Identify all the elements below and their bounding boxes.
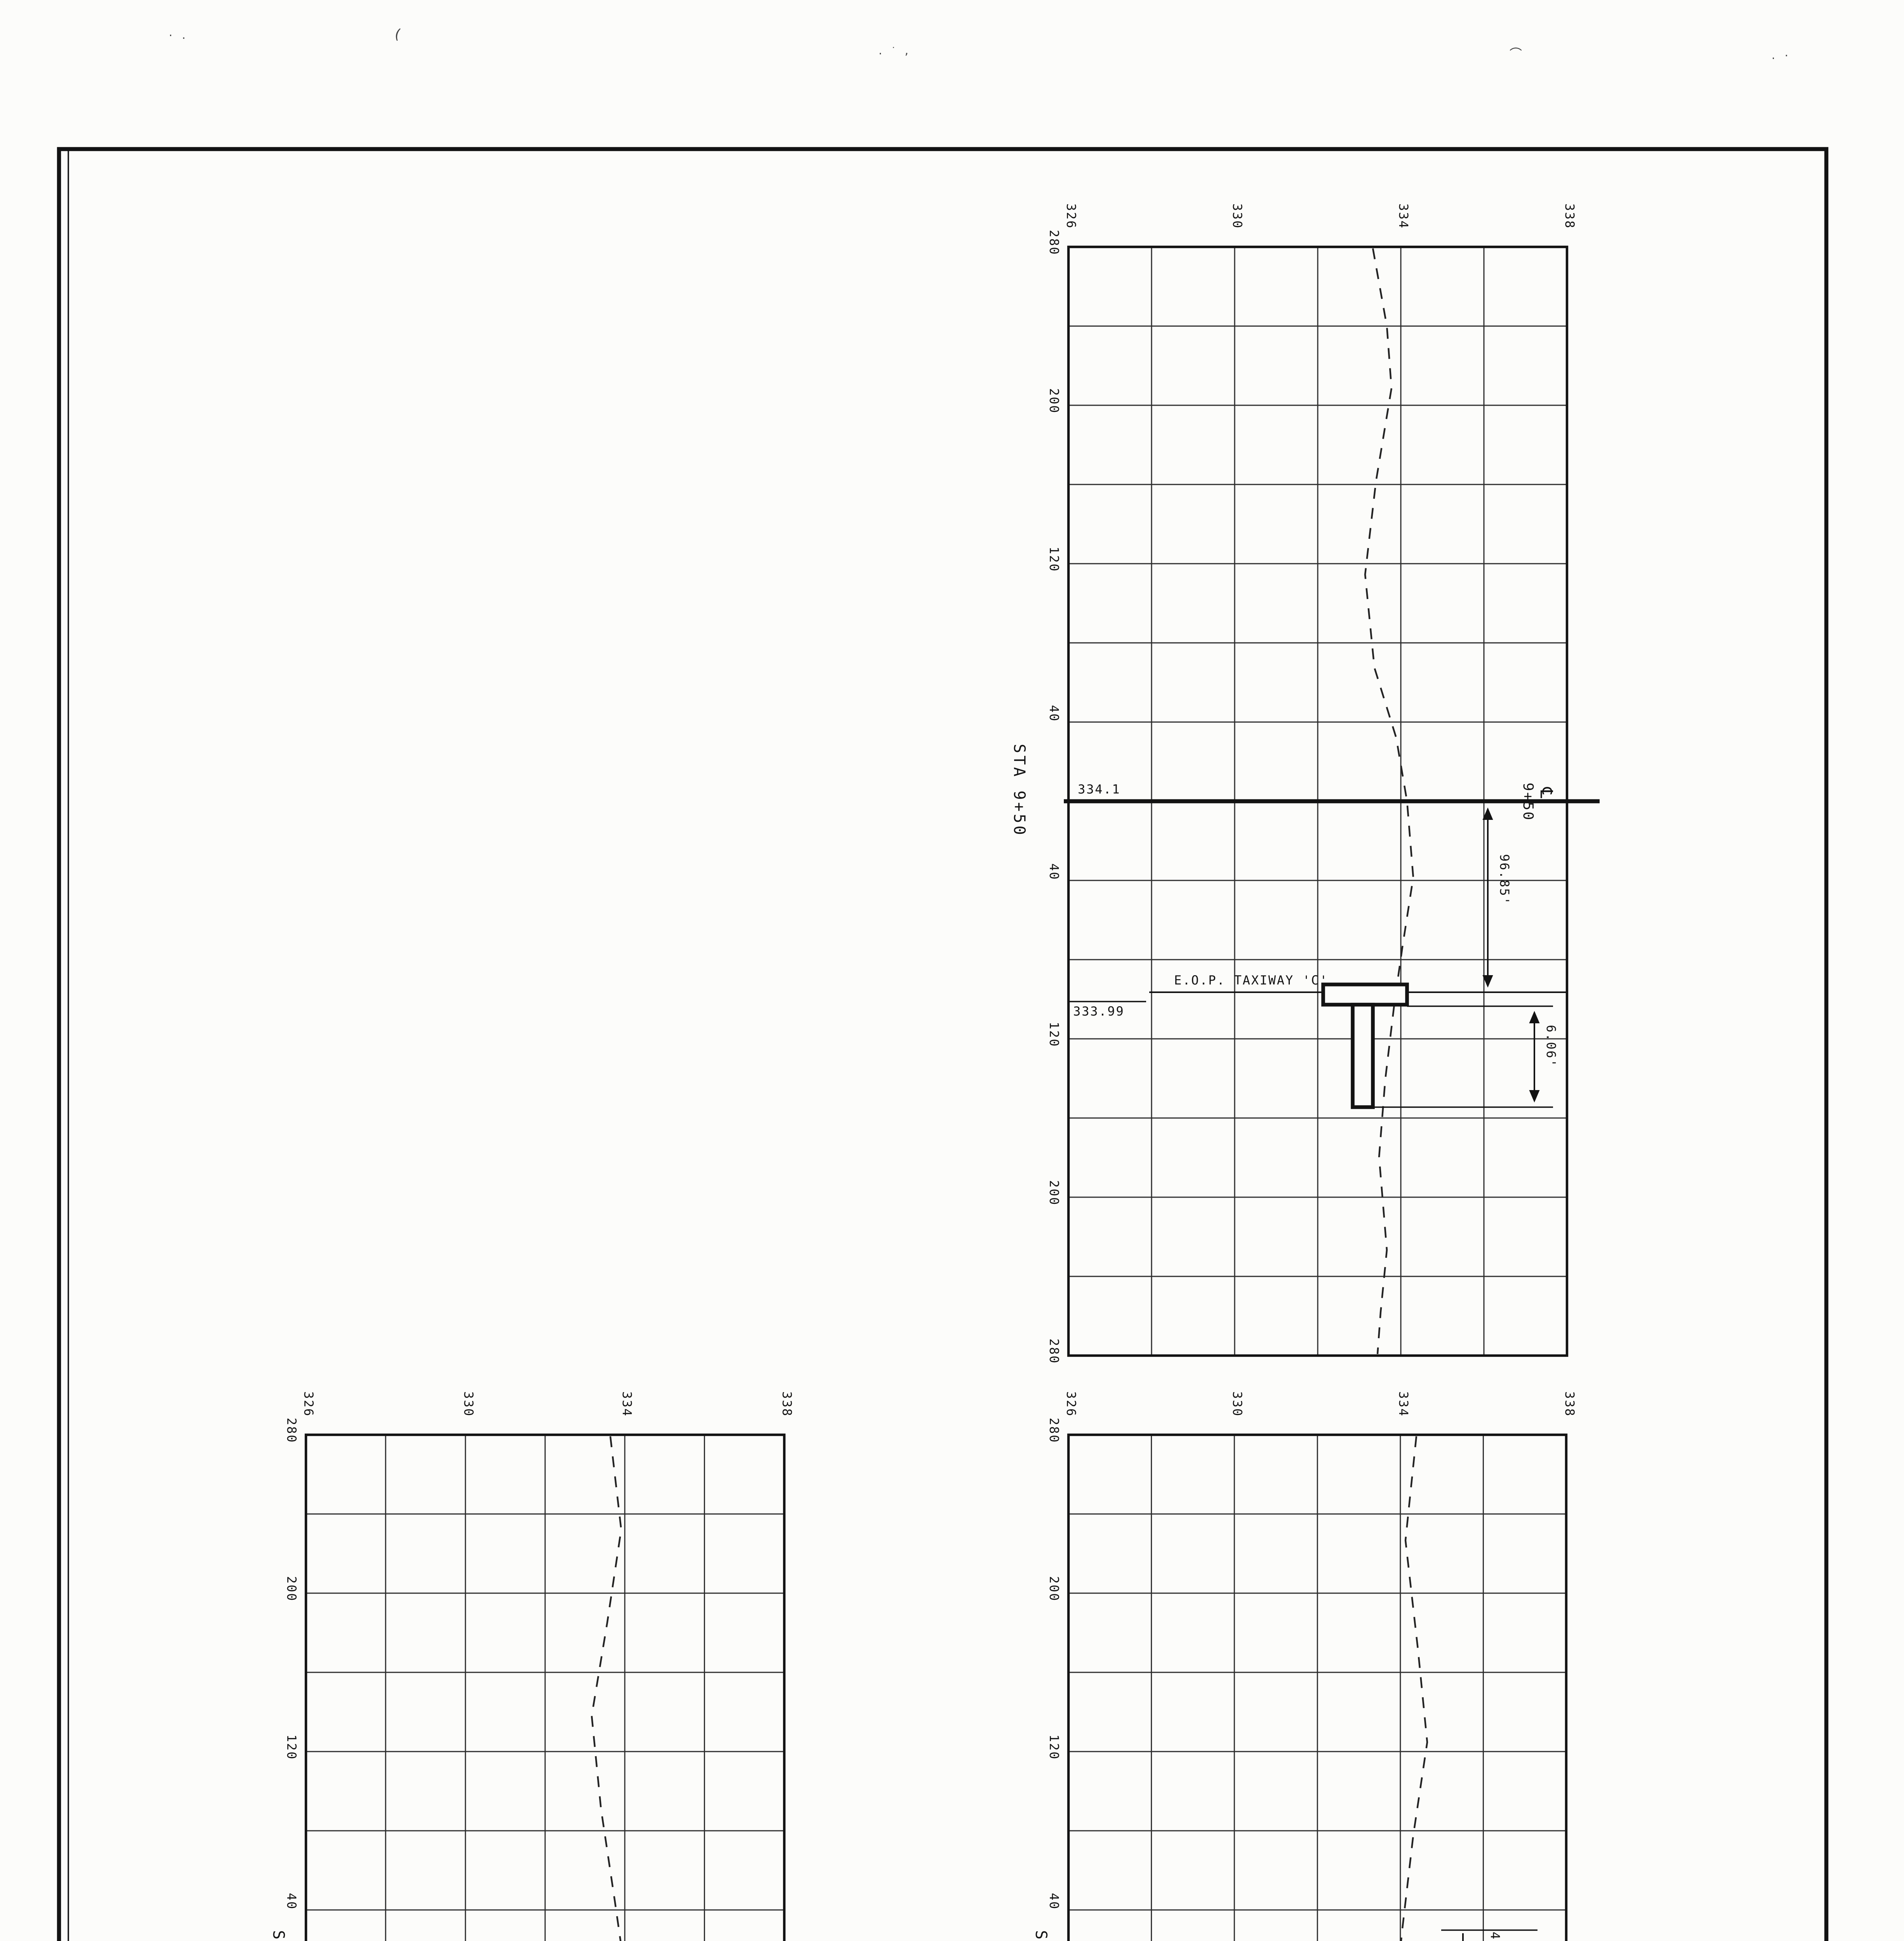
offset-axis-label: 40 bbox=[283, 1893, 297, 1910]
offset-axis-label: 120 bbox=[1046, 1734, 1059, 1760]
grid-sta-10-00 bbox=[306, 1435, 784, 1941]
offset-axis-label: 280 bbox=[1046, 230, 1059, 255]
drawing-sheet: ( · . . ˙ , ︵ . · bbox=[0, 0, 1904, 1941]
offset-axis-label: 200 bbox=[1046, 1576, 1059, 1602]
offset-axis-label: 40 bbox=[1046, 1893, 1059, 1910]
offset-axis-label: 200 bbox=[283, 1576, 297, 1602]
offset-axis-label: 200 bbox=[1046, 388, 1059, 414]
elevation-axis-label: 326 bbox=[301, 1391, 314, 1417]
eop-label-a: E.O.P. TAXIWAY 'C' bbox=[1174, 975, 1328, 988]
dim-6-06: 6.06' bbox=[1543, 1025, 1556, 1068]
elevation-axis-label: 334 bbox=[620, 1391, 633, 1417]
linework-layer bbox=[0, 0, 1904, 1941]
elevation-axis-label: 330 bbox=[1229, 203, 1242, 229]
scan-mark: ( bbox=[391, 27, 405, 45]
existing-ground-c bbox=[1365, 1436, 1427, 1941]
pavement-edge-a bbox=[1353, 1005, 1373, 1107]
scan-mark: . · bbox=[1770, 51, 1790, 62]
elevation-axis-label: 334 bbox=[1395, 1391, 1408, 1417]
existing-ground-b bbox=[592, 1436, 635, 1941]
elevation-axis-label: 338 bbox=[779, 1391, 792, 1417]
grid-sta-10-50 bbox=[1068, 1435, 1566, 1941]
offset-axis-label: 280 bbox=[1046, 1339, 1059, 1364]
scan-mark: . ˙ , bbox=[877, 47, 910, 57]
sheet-border bbox=[59, 149, 1826, 1941]
offset-axis-label: 40 bbox=[1046, 705, 1059, 722]
pavement-a bbox=[1323, 984, 1407, 1005]
scan-mark: ︵ bbox=[1510, 37, 1523, 54]
elevation-axis-label: 326 bbox=[1063, 203, 1076, 229]
elevation-axis-label: 334 bbox=[1395, 203, 1409, 229]
centerline-symbol-a: ℄ bbox=[1537, 787, 1555, 800]
eop-elev-a: 333.99 bbox=[1073, 1006, 1124, 1019]
scan-mark: · . bbox=[168, 31, 188, 42]
cl-station-a: 9+50 bbox=[1518, 783, 1533, 821]
offset-axis-label: 280 bbox=[283, 1418, 297, 1443]
station-title-c: STA 10+50 bbox=[1030, 1930, 1047, 1941]
cl-elev-a: 334.1 bbox=[1078, 784, 1121, 797]
elevation-axis-label: 330 bbox=[460, 1391, 473, 1417]
station-title-a: STA 9+50 bbox=[1009, 744, 1025, 837]
offset-axis-label: 120 bbox=[1046, 547, 1059, 572]
offset-axis-label: 120 bbox=[283, 1734, 297, 1760]
station-title-b: STA 10+00 bbox=[268, 1930, 284, 1941]
offset-axis-label: 280 bbox=[1046, 1418, 1059, 1443]
dim-4-91: 4.91' bbox=[1487, 1932, 1500, 1941]
offset-axis-label: 200 bbox=[1046, 1180, 1059, 1206]
elevation-axis-label: 330 bbox=[1229, 1391, 1242, 1417]
elevation-axis-label: 338 bbox=[1561, 1391, 1574, 1417]
offset-axis-label: 120 bbox=[1046, 1022, 1059, 1047]
dim-96-85: 96.85' bbox=[1496, 854, 1510, 905]
existing-ground-a bbox=[1365, 248, 1413, 1354]
offset-axis-label: 40 bbox=[1046, 863, 1059, 880]
elevation-axis-label: 326 bbox=[1063, 1391, 1076, 1417]
grid-sta-9-50 bbox=[1068, 247, 1567, 1356]
elevation-axis-label: 338 bbox=[1562, 203, 1575, 229]
